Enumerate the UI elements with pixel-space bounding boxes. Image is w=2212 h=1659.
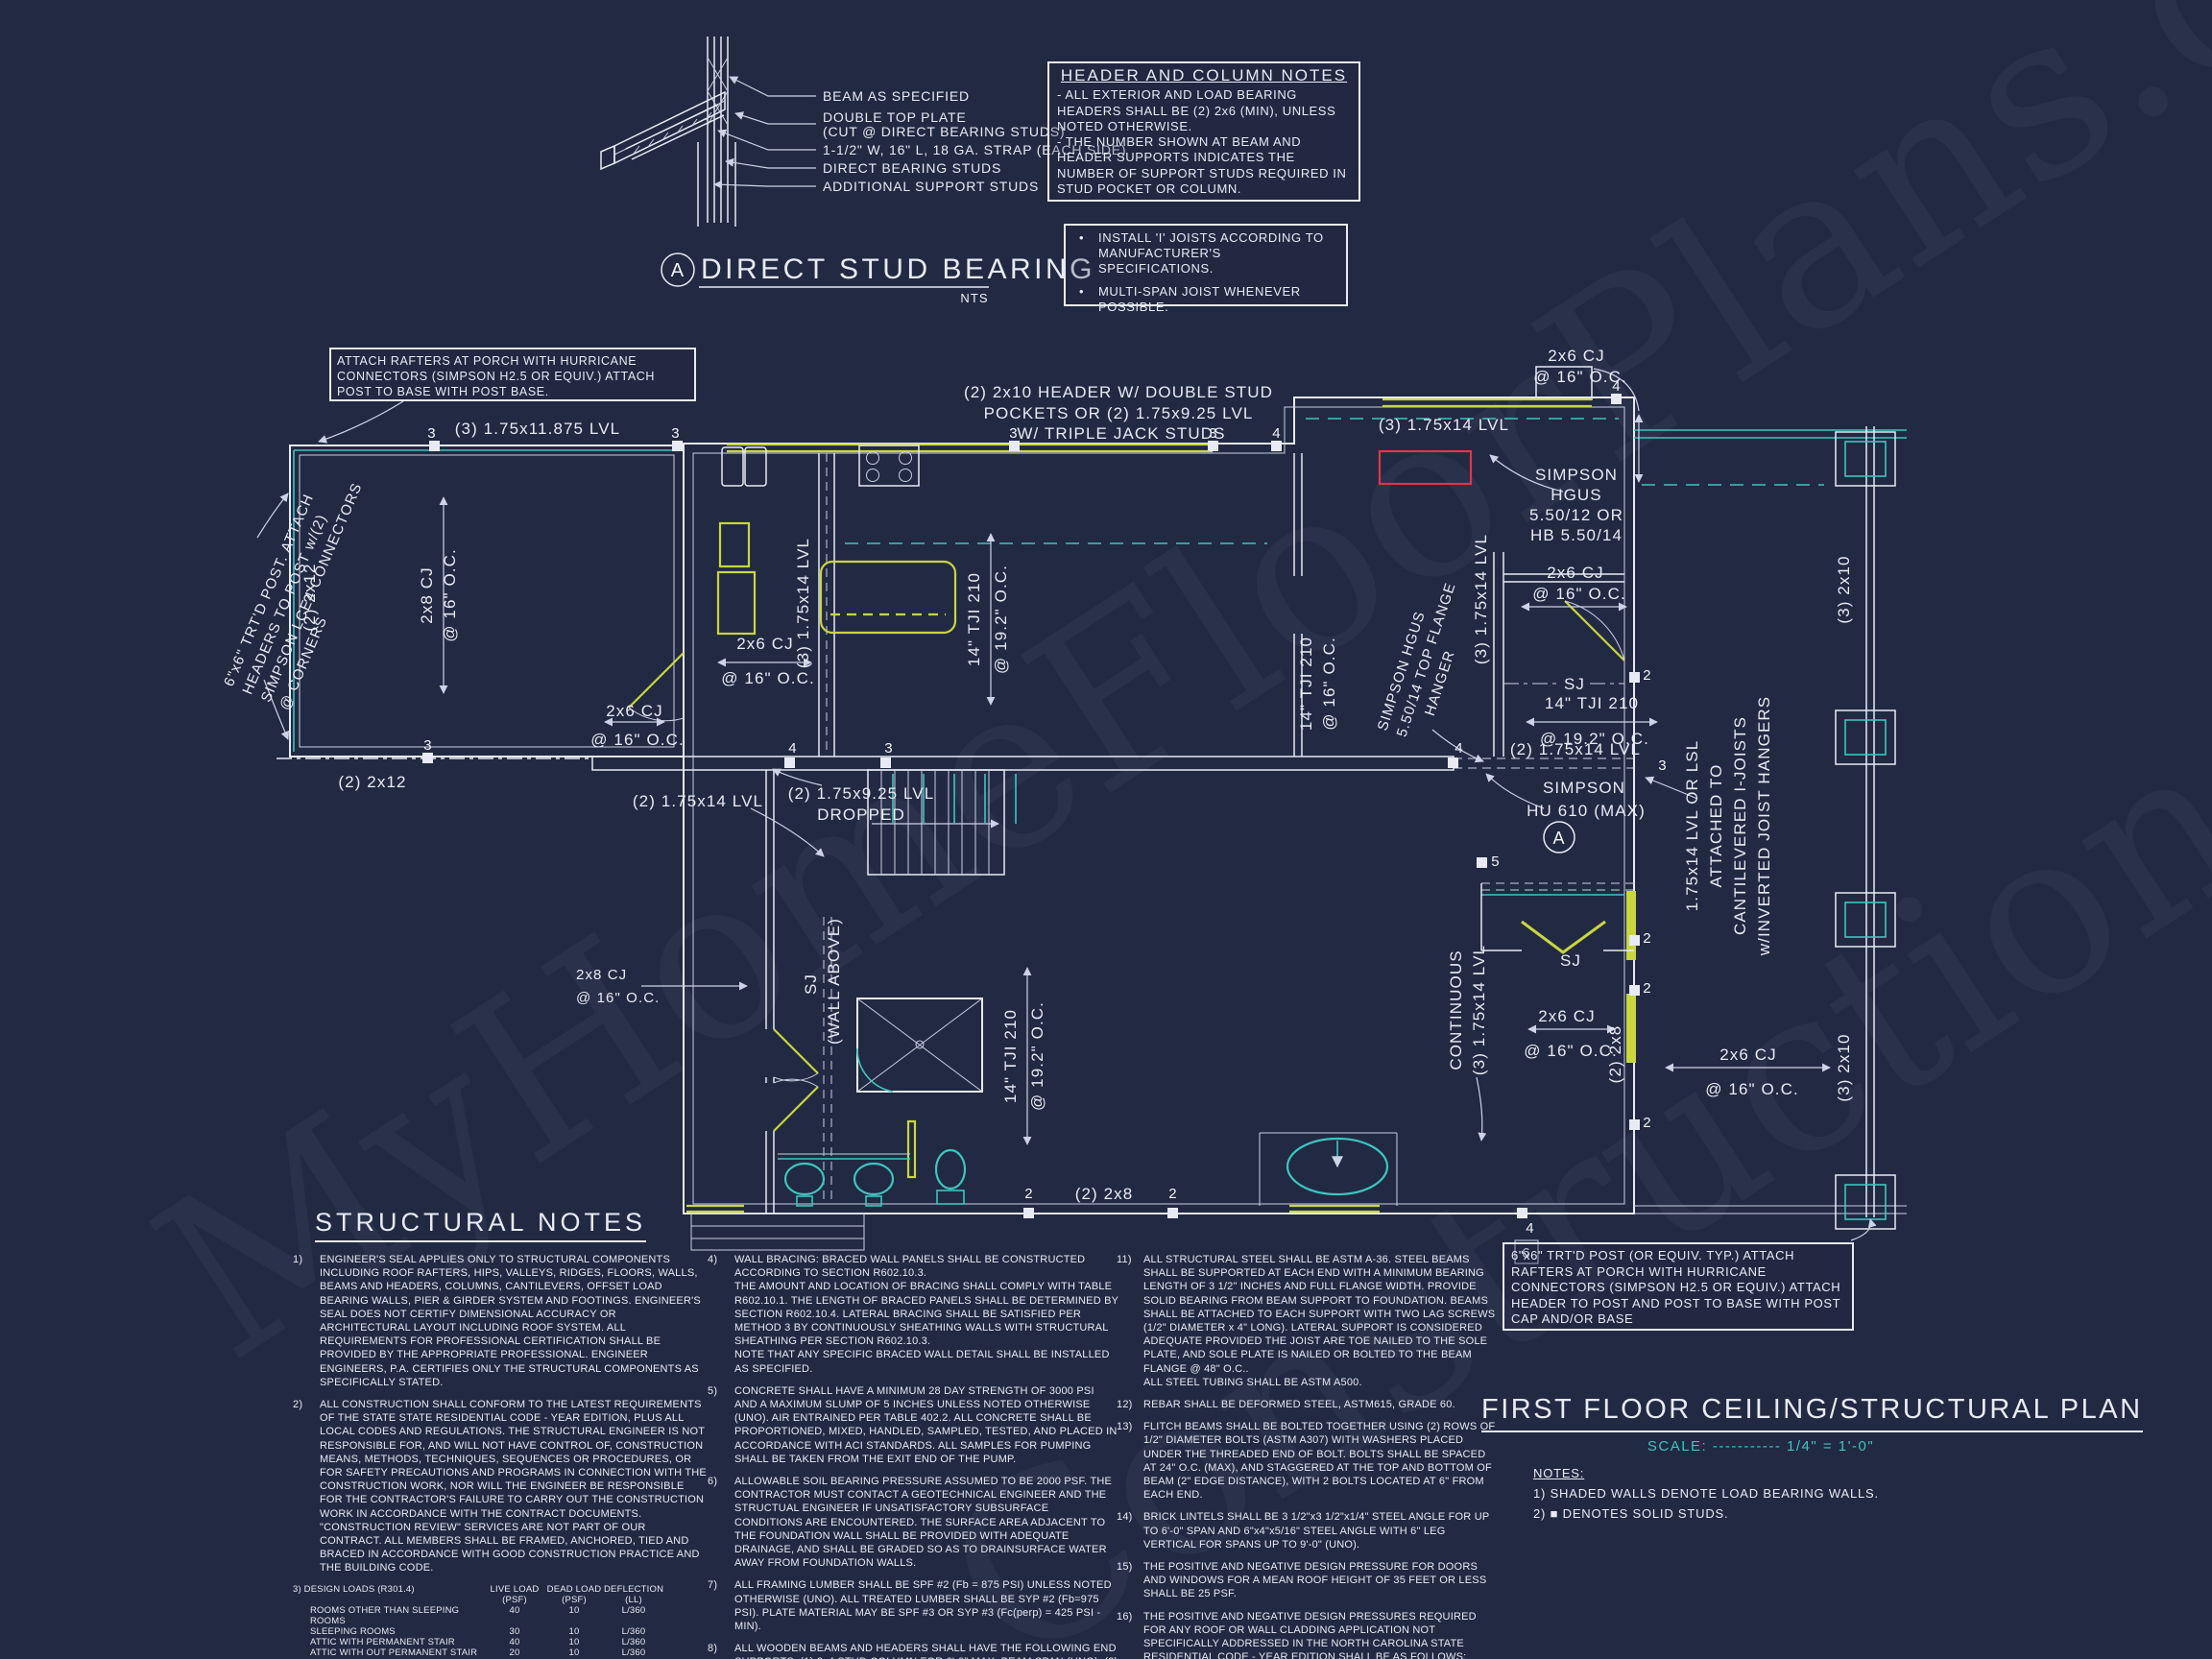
structural-notes-col1: 1)ENGINEER'S SEAL APPLIES ONLY TO STRUCT… xyxy=(293,1253,708,1659)
header-note-2: - THE NUMBER SHOWN AT BEAM AND HEADER SU… xyxy=(1057,134,1351,197)
svg-text:3: 3 xyxy=(1009,425,1018,442)
porch-post xyxy=(1836,893,1895,947)
callout-support-studs: ADDITIONAL SUPPORT STUDS xyxy=(823,179,1039,194)
label-header-note-2: POCKETS OR (2) 1.75x9.25 LVL xyxy=(984,404,1254,422)
label-tji-dining-spacing: @ 19.2" O.C. xyxy=(992,565,1010,674)
sheet-notes: NOTES: 1) SHADED WALLS DENOTE LOAD BEARI… xyxy=(1533,1463,1879,1524)
label-porch-right-beam-top: (3) 2x10 xyxy=(1835,555,1853,623)
structural-notes-col2: 4)WALL BRACING: BRACED WALL PANELS SHALL… xyxy=(708,1253,1118,1659)
blueprint-sheet: MyHomeFloorPlans.com Construction xyxy=(0,0,2212,1659)
label-header-note-1: (2) 2x10 HEADER W/ DOUBLE STUD xyxy=(964,383,1273,401)
note-text: CONCRETE SHALL HAVE A MINIMUM 28 DAY STR… xyxy=(734,1385,1118,1465)
detail-scale: NTS xyxy=(960,291,988,305)
table-row: ATTIC WITH OUT PERMANENT STAIR2010L/360 xyxy=(293,1647,708,1658)
note-num: 8) xyxy=(708,1642,717,1655)
svg-text:4: 4 xyxy=(1455,740,1463,757)
header-notes-title: HEADER AND COLUMN NOTES xyxy=(1057,68,1351,84)
label-hgus-top-flange: SIMPSON HGUS 5.50/14 TOP FLANGE HANGER xyxy=(1375,574,1479,745)
label-lvl-kitchen: (3) 1.75x14 LVL xyxy=(794,538,812,668)
svg-text:2: 2 xyxy=(1643,930,1651,947)
ijoist-note-1: INSTALL 'I' JOISTS ACCORDING TO MANUFACT… xyxy=(1073,230,1338,276)
svg-text:2: 2 xyxy=(1024,1186,1033,1202)
label-porch-right-beam-bottom: (3) 2x10 xyxy=(1835,1033,1853,1101)
toilet xyxy=(936,1150,965,1189)
door-leaf xyxy=(774,1087,818,1131)
note-text: THE POSITIVE AND NEGATIVE DESIGN PRESSUR… xyxy=(1143,1561,1486,1599)
label-hgus-4: HB 5.50/14 xyxy=(1530,526,1623,544)
svg-text:3: 3 xyxy=(427,425,436,442)
note-num: 15) xyxy=(1117,1560,1133,1574)
label-sj-closet: SJ xyxy=(1564,675,1585,693)
table-row: ATTIC WITH PERMANENT STAIR4010L/360 xyxy=(293,1637,708,1647)
closet-door-leaf xyxy=(1565,601,1624,661)
label-hgus-3: 5.50/12 OR xyxy=(1529,506,1623,524)
post-note: 6"x6" TRT'D POST (OR EQUIV. TYP.) ATTACH… xyxy=(1511,1248,1845,1328)
label-continuous-2: (3) 1.75x14 LVL xyxy=(1470,945,1488,1075)
note-text: THE POSITIVE AND NEGATIVE DESIGN PRESSUR… xyxy=(1143,1611,1477,1659)
svg-text:4: 4 xyxy=(1526,1220,1534,1237)
label-cantilever-note: 1.75x14 LVL OR LSL ATTACHED TO CANTILEVE… xyxy=(1683,696,1773,956)
post-note-box: 6"x6" TRT'D POST (OR EQUIV. TYP.) ATTACH… xyxy=(1503,1242,1854,1331)
label-hgus: SIMPSON xyxy=(1535,466,1618,484)
label-cj-mid-spacing: @ 16" O.C. xyxy=(576,990,660,1006)
structural-notes-title: STRUCTURAL NOTES xyxy=(315,1208,646,1242)
label-tji-bath: 14" TJI 210 xyxy=(1001,1009,1020,1103)
svg-text:5: 5 xyxy=(1491,854,1500,870)
svg-text:3: 3 xyxy=(1658,757,1667,774)
detail-a-callout: A xyxy=(1552,829,1565,848)
bathroom xyxy=(778,998,1397,1206)
note-num: 6) xyxy=(708,1475,717,1488)
svg-text:4: 4 xyxy=(788,740,797,757)
label-porch-cj-spacing: @ 16" O.C. xyxy=(441,548,459,642)
col-header-defl: DEFLECTION (LL) xyxy=(604,1584,663,1605)
note-text: ALL STRUCTURAL STEEL SHALL BE ASTM A-36.… xyxy=(1143,1254,1495,1388)
svg-text:2: 2 xyxy=(1643,1115,1651,1131)
design-loads-table: 3) DESIGN LOADS (R301.4) LIVE LOAD (PSF)… xyxy=(293,1584,708,1659)
svg-text:3: 3 xyxy=(884,740,893,757)
note-text: ALL CONSTRUCTION SHALL CONFORM TO THE LA… xyxy=(320,1399,707,1574)
label-cj-hall-spacing: @ 16" O.C. xyxy=(590,731,685,749)
label-lvl-closet: (3) 1.75x14 LVL xyxy=(1472,534,1490,664)
label-sj-wall: SJ xyxy=(802,974,820,995)
svg-text:2: 2 xyxy=(1168,1186,1177,1202)
floor-plan: (3) 1.75x11.875 LVL (2) 2x12 (2) 2x12 2x… xyxy=(221,347,1907,1263)
kitchen-island xyxy=(821,562,955,633)
note-num: 2) xyxy=(293,1398,302,1411)
ijoist-notes-box: INSTALL 'I' JOISTS ACCORDING TO MANUFACT… xyxy=(1064,224,1348,306)
label-tji-16: 14" TJI 210 xyxy=(1297,637,1315,731)
table-row: SLEEPING ROOMS3010L/360 xyxy=(293,1626,708,1637)
structural-notes-col3: 11)ALL STRUCTURAL STEEL SHALL BE ASTM A-… xyxy=(1117,1253,1497,1659)
svg-text:CANTILEVERED I-JOISTS: CANTILEVERED I-JOISTS xyxy=(1731,716,1749,935)
joist-lines xyxy=(845,419,1619,824)
french-doors xyxy=(1522,922,1605,952)
svg-text:1.75x14 LVL OR LSL: 1.75x14 LVL OR LSL xyxy=(1683,740,1701,912)
note-text: REBAR SHALL BE DEFORMED STEEL, ASTM615, … xyxy=(1143,1399,1455,1410)
label-tji-bath-spacing: @ 19.2" O.C. xyxy=(1028,1001,1046,1111)
note-num: 5) xyxy=(708,1384,717,1398)
sink xyxy=(785,1164,824,1194)
header-note-1: - ALL EXTERIOR AND LOAD BEARING HEADERS … xyxy=(1057,87,1351,134)
label-lvl-dropped: (2) 1.75x9.25 LVL xyxy=(788,784,935,803)
label-continuous: CONTINUOUS xyxy=(1447,950,1465,1070)
label-porch-bottom-beam: (2) 2x12 xyxy=(338,773,406,791)
col-header-dead: DEAD LOAD (PSF) xyxy=(544,1584,604,1605)
note-num: 7) xyxy=(708,1578,717,1592)
label-cj-kitchen-spacing: @ 16" O.C. xyxy=(721,669,815,687)
header-column-notes-box: HEADER AND COLUMN NOTES - ALL EXTERIOR A… xyxy=(1047,61,1360,202)
svg-text:3: 3 xyxy=(423,737,432,754)
label-cj-closet-spacing: @ 16" O.C. xyxy=(1532,585,1626,603)
label-lvl-left: (2) 1.75x14 LVL xyxy=(633,792,763,810)
label-header-note-3: W/ TRIPLE JACK STUDS xyxy=(1017,424,1225,443)
fireplace xyxy=(1380,451,1471,484)
note-num: 14) xyxy=(1117,1510,1133,1524)
sheet-notes-title: NOTES: xyxy=(1533,1463,1879,1483)
note-num: 13) xyxy=(1117,1420,1133,1433)
note-text: ALL FRAMING LUMBER SHALL BE SPF #2 (Fb =… xyxy=(734,1579,1112,1632)
label-hu610: SIMPSON xyxy=(1543,779,1625,797)
detail-marker-letter: A xyxy=(671,260,685,281)
porch-post xyxy=(1836,710,1895,764)
col-header-live: LIVE LOAD (PSF) xyxy=(485,1584,544,1605)
sheet-note-1: 1) SHADED WALLS DENOTE LOAD BEARING WALL… xyxy=(1533,1483,1879,1503)
label-porch-top-beam: (3) 1.75x11.875 LVL xyxy=(455,420,620,438)
note-text: ALL WOODEN BEAMS AND HEADERS SHALL HAVE … xyxy=(734,1643,1118,1659)
porch-post xyxy=(1836,1175,1895,1229)
label-cj-br1: 2x6 CJ xyxy=(1538,1007,1596,1025)
label-cj-br1-spacing: @ 16" O.C. xyxy=(1524,1042,1618,1060)
note-text: ALLOWABLE SOIL BEARING PRESSURE ASSUMED … xyxy=(734,1476,1112,1569)
note-num: 11) xyxy=(1117,1253,1132,1266)
callout-bearing-studs: DIRECT BEARING STUDS xyxy=(823,160,1001,176)
label-cj-top-right: 2x6 CJ xyxy=(1548,347,1605,365)
pantry xyxy=(720,523,749,566)
note-num: 12) xyxy=(1117,1398,1133,1411)
stud-count-markers: 3 3 3 3 3 4 4 4 3 4 3 2 5 2 2 2 2 2 4 6 xyxy=(423,378,1667,1263)
porch-connector-note: ATTACH RAFTERS AT PORCH WITH HURRICANE C… xyxy=(337,353,688,399)
detail-title: DIRECT STUD BEARING xyxy=(701,253,1095,285)
design-loads-heading: 3) DESIGN LOADS (R301.4) xyxy=(293,1584,485,1605)
label-2x8-bottom: (2) 2x8 xyxy=(1075,1185,1134,1203)
note-num: 4) xyxy=(708,1253,717,1266)
table-row: ROOMS OTHER THAN SLEEPING ROOMS4010L/360 xyxy=(293,1605,708,1626)
main-beam-hatched xyxy=(592,757,1454,770)
porch-post xyxy=(1836,432,1895,486)
sink xyxy=(854,1164,893,1194)
callout-top-plate: DOUBLE TOP PLATE xyxy=(823,109,966,125)
sheet-note-2: 2) ■ DENOTES SOLID STUDS. xyxy=(1533,1503,1879,1524)
kitchen xyxy=(718,445,955,634)
svg-text:4: 4 xyxy=(1612,378,1621,395)
label-2x8-vertical: (2) 2x8 xyxy=(1606,1025,1624,1084)
label-tji-dining: 14" TJI 210 xyxy=(965,572,983,666)
note-text: FLITCH BEAMS SHALL BE BOLTED TOGETHER US… xyxy=(1143,1421,1495,1501)
porch-connector-note-box: ATTACH RAFTERS AT PORCH WITH HURRICANE C… xyxy=(329,348,696,401)
leader-lines xyxy=(257,401,1871,1240)
svg-text:w/INVERTED JOIST HANGERS: w/INVERTED JOIST HANGERS xyxy=(1755,696,1773,956)
label-hgus-2: HGUS xyxy=(1551,486,1602,504)
note-num: 1) xyxy=(293,1253,302,1266)
door-leaf xyxy=(774,1029,818,1073)
label-lvl-right: (2) 1.75x14 LVL xyxy=(1510,740,1641,758)
label-cj-br2-spacing: @ 16" O.C. xyxy=(1705,1080,1799,1098)
svg-text:3: 3 xyxy=(671,425,680,442)
label-cj-mid: 2x8 CJ xyxy=(576,967,627,983)
label-sj-wall-above: (WALL ABOVE) xyxy=(825,918,843,1045)
svg-text:3: 3 xyxy=(1209,425,1217,442)
label-cj-br2: 2x6 CJ xyxy=(1719,1046,1777,1064)
sheet-scale: SCALE: ----------- 1/4" = 1'-0" xyxy=(1481,1438,2040,1455)
porch-door-leaf xyxy=(629,653,684,708)
note-text: ENGINEER'S SEAL APPLIES ONLY TO STRUCTUR… xyxy=(320,1254,701,1388)
callout-top-plate-2: (CUT @ DIRECT BEARING STUDS) xyxy=(823,124,1065,139)
label-cj-closet: 2x6 CJ xyxy=(1547,564,1604,582)
note-text: BRICK LINTELS SHALL BE 3 1/2"x3 1/2"x1/4… xyxy=(1143,1511,1489,1550)
ijoist-note-2: MULTI-SPAN JOIST WHENEVER POSSIBLE. xyxy=(1073,284,1338,315)
note-num: 16) xyxy=(1117,1610,1133,1623)
pocket-door xyxy=(908,1121,915,1177)
label-porch-cj: 2x8 CJ xyxy=(418,566,436,624)
label-cj-kitchen: 2x6 CJ xyxy=(736,635,794,653)
front-stoop xyxy=(691,1214,864,1250)
svg-text:2: 2 xyxy=(1643,980,1651,997)
label-tji-16-spacing: @ 16" O.C. xyxy=(1320,637,1338,731)
svg-text:4: 4 xyxy=(1272,425,1281,442)
sheet-title: FIRST FLOOR CEILING/STRUCTURAL PLAN xyxy=(1481,1394,2143,1432)
label-lvl-top: (3) 1.75x14 LVL xyxy=(1379,416,1509,434)
label-hu610-2: HU 610 (MAX) xyxy=(1527,802,1646,820)
svg-text:ATTACHED TO: ATTACHED TO xyxy=(1707,764,1725,888)
label-tji-right: 14" TJI 210 xyxy=(1545,694,1639,712)
callout-beam: BEAM AS SPECIFIED xyxy=(823,88,970,104)
note-text: WALL BRACING: BRACED WALL PANELS SHALL B… xyxy=(734,1254,1118,1375)
label-cj-hall: 2x6 CJ xyxy=(606,702,663,720)
label-sj-master: SJ xyxy=(1560,951,1581,970)
svg-text:2: 2 xyxy=(1643,667,1651,684)
label-lvl-dropped-2: DROPPED xyxy=(817,805,905,824)
